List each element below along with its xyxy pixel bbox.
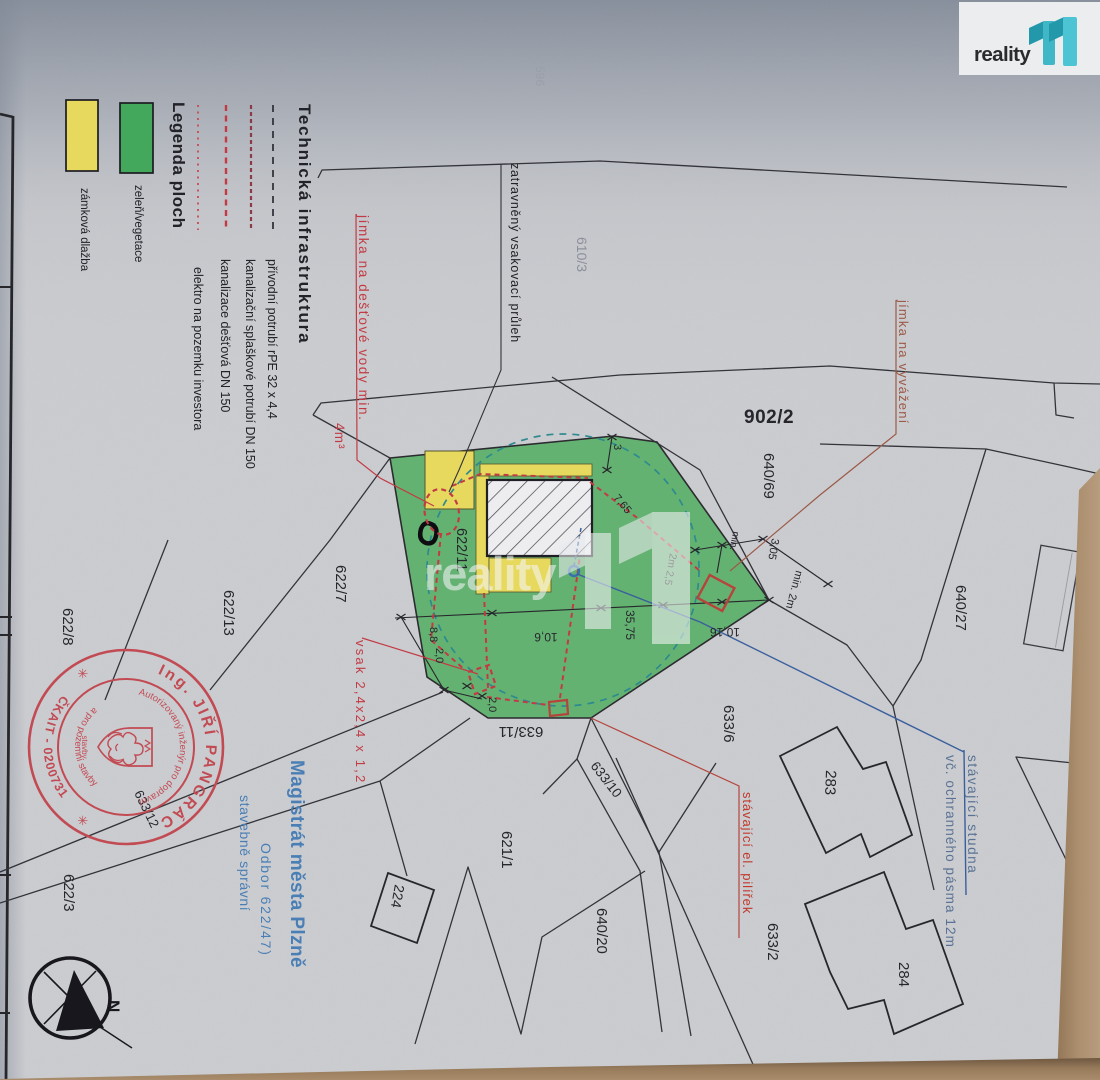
svg-text:633/6: 633/6	[720, 705, 737, 743]
svg-text:10,6: 10,6	[534, 630, 558, 644]
svg-text:633/2: 633/2	[764, 923, 781, 961]
svg-text:kanalizace dešťová DN 150: kanalizace dešťová DN 150	[218, 259, 232, 412]
svg-text:3: 3	[611, 444, 623, 450]
svg-text:610/3: 610/3	[574, 237, 590, 272]
svg-text:284: 284	[895, 962, 912, 987]
svg-text:vč. ochranného pásma 12m: vč. ochranného pásma 12m	[943, 755, 958, 948]
svg-text:Technická infrastruktura: Technická infrastruktura	[295, 104, 314, 344]
svg-text:✳: ✳	[75, 668, 90, 679]
svg-text:596: 596	[533, 66, 547, 86]
svg-text:stávající studna: stávající studna	[965, 755, 980, 874]
svg-text:622/7: 622/7	[332, 565, 349, 603]
svg-text:přívodní potrubí rPE 32 x 4,4: přívodní potrubí rPE 32 x 4,4	[265, 259, 279, 419]
svg-text:zatravněný vsakovací průleh: zatravněný vsakovací průleh	[508, 163, 522, 343]
svg-text:vsak 2,4x2,4 x 1,2: vsak 2,4x2,4 x 1,2	[353, 640, 368, 784]
svg-text:Odbor 622/47): Odbor 622/47)	[258, 843, 274, 957]
svg-text:622/8: 622/8	[59, 608, 76, 646]
svg-text:283: 283	[821, 770, 839, 796]
svg-text:zámková dlažba: zámková dlažba	[78, 188, 90, 272]
svg-text:633/11: 633/11	[499, 723, 544, 740]
svg-text:10,16: 10,16	[710, 625, 740, 639]
svg-text:622/13: 622/13	[220, 590, 237, 636]
svg-text:2,0: 2,0	[486, 697, 498, 712]
svg-text:35,75: 35,75	[623, 610, 637, 640]
svg-text:jímka na vyvážení: jímka na vyvážení	[896, 299, 911, 424]
svg-text:Magistrát města Plzně: Magistrát města Plzně	[286, 760, 307, 968]
svg-text:621/1: 621/1	[498, 831, 515, 869]
svg-text:✳: ✳	[75, 815, 90, 826]
svg-text:4m³: 4m³	[332, 423, 347, 450]
svg-text:902/2: 902/2	[744, 407, 794, 428]
svg-text:reality: reality	[424, 547, 556, 600]
svg-text:N: N	[104, 1000, 123, 1012]
svg-text:622/3: 622/3	[60, 874, 77, 912]
svg-text:stávající el. pilířek: stávající el. pilířek	[740, 792, 755, 914]
svg-text:stavebně správní: stavebně správní	[237, 795, 253, 911]
svg-text:640/27: 640/27	[952, 585, 969, 631]
svg-text:640/69: 640/69	[760, 453, 777, 499]
svg-text:640/20: 640/20	[593, 908, 610, 954]
svg-text:kanalizační splaškové potrubí: kanalizační splaškové potrubí DN 150	[243, 259, 257, 469]
svg-text:jímka na dešťové vody min.: jímka na dešťové vody min.	[356, 214, 371, 422]
svg-text:2,0: 2,0	[433, 648, 445, 663]
svg-text:reality: reality	[974, 43, 1031, 66]
svg-text:Legenda ploch: Legenda ploch	[169, 102, 188, 228]
svg-text:elektro na pozemku investora: elektro na pozemku investora	[191, 267, 205, 430]
svg-text:stavby: stavby	[80, 735, 89, 758]
svg-text:zeleň/vegetace: zeleň/vegetace	[132, 185, 144, 262]
svg-text:8,8: 8,8	[427, 627, 439, 642]
